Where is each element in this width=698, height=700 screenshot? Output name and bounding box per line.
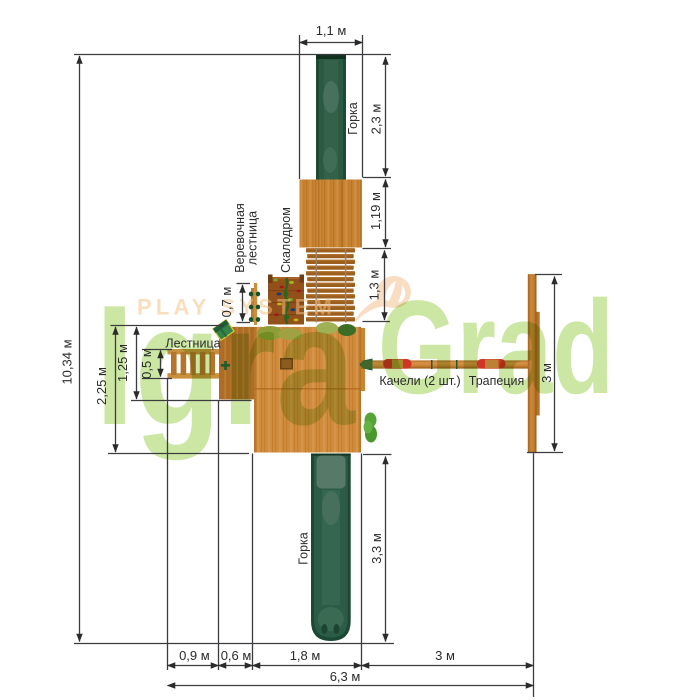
svg-text:6,3 м: 6,3 м — [330, 669, 361, 684]
svg-text:1,1 м: 1,1 м — [316, 23, 347, 38]
svg-text:Grad: Grad — [378, 274, 614, 422]
svg-text:Горка: Горка — [346, 102, 360, 135]
svg-text:1,3 м: 1,3 м — [367, 270, 382, 301]
svg-text:0,7 м: 0,7 м — [219, 287, 234, 318]
svg-text:1,19 м: 1,19 м — [368, 192, 383, 230]
svg-text:Лестница: Лестница — [165, 337, 220, 351]
svg-text:3 м: 3 м — [539, 363, 554, 383]
svg-text:лестница: лестница — [246, 211, 260, 265]
svg-text:Горка: Горка — [297, 532, 311, 565]
svg-text:1,8 м: 1,8 м — [290, 648, 321, 663]
svg-text:3,3 м: 3,3 м — [369, 533, 384, 564]
svg-text:Качели (2 шт.): Качели (2 шт.) — [379, 374, 460, 388]
svg-text:10,34 м: 10,34 м — [60, 339, 75, 384]
svg-text:Скалодром: Скалодром — [279, 207, 293, 273]
svg-text:2,25 м: 2,25 м — [94, 367, 109, 405]
svg-text:2,3 м: 2,3 м — [369, 104, 384, 135]
svg-text:Трапеция: Трапеция — [469, 374, 524, 388]
svg-text:0,5 м: 0,5 м — [139, 348, 154, 379]
svg-text:3 м: 3 м — [435, 648, 455, 663]
svg-text:0,6 м: 0,6 м — [221, 648, 252, 663]
svg-text:0,9 м: 0,9 м — [179, 648, 210, 663]
svg-text:1,25 м: 1,25 м — [115, 344, 130, 382]
